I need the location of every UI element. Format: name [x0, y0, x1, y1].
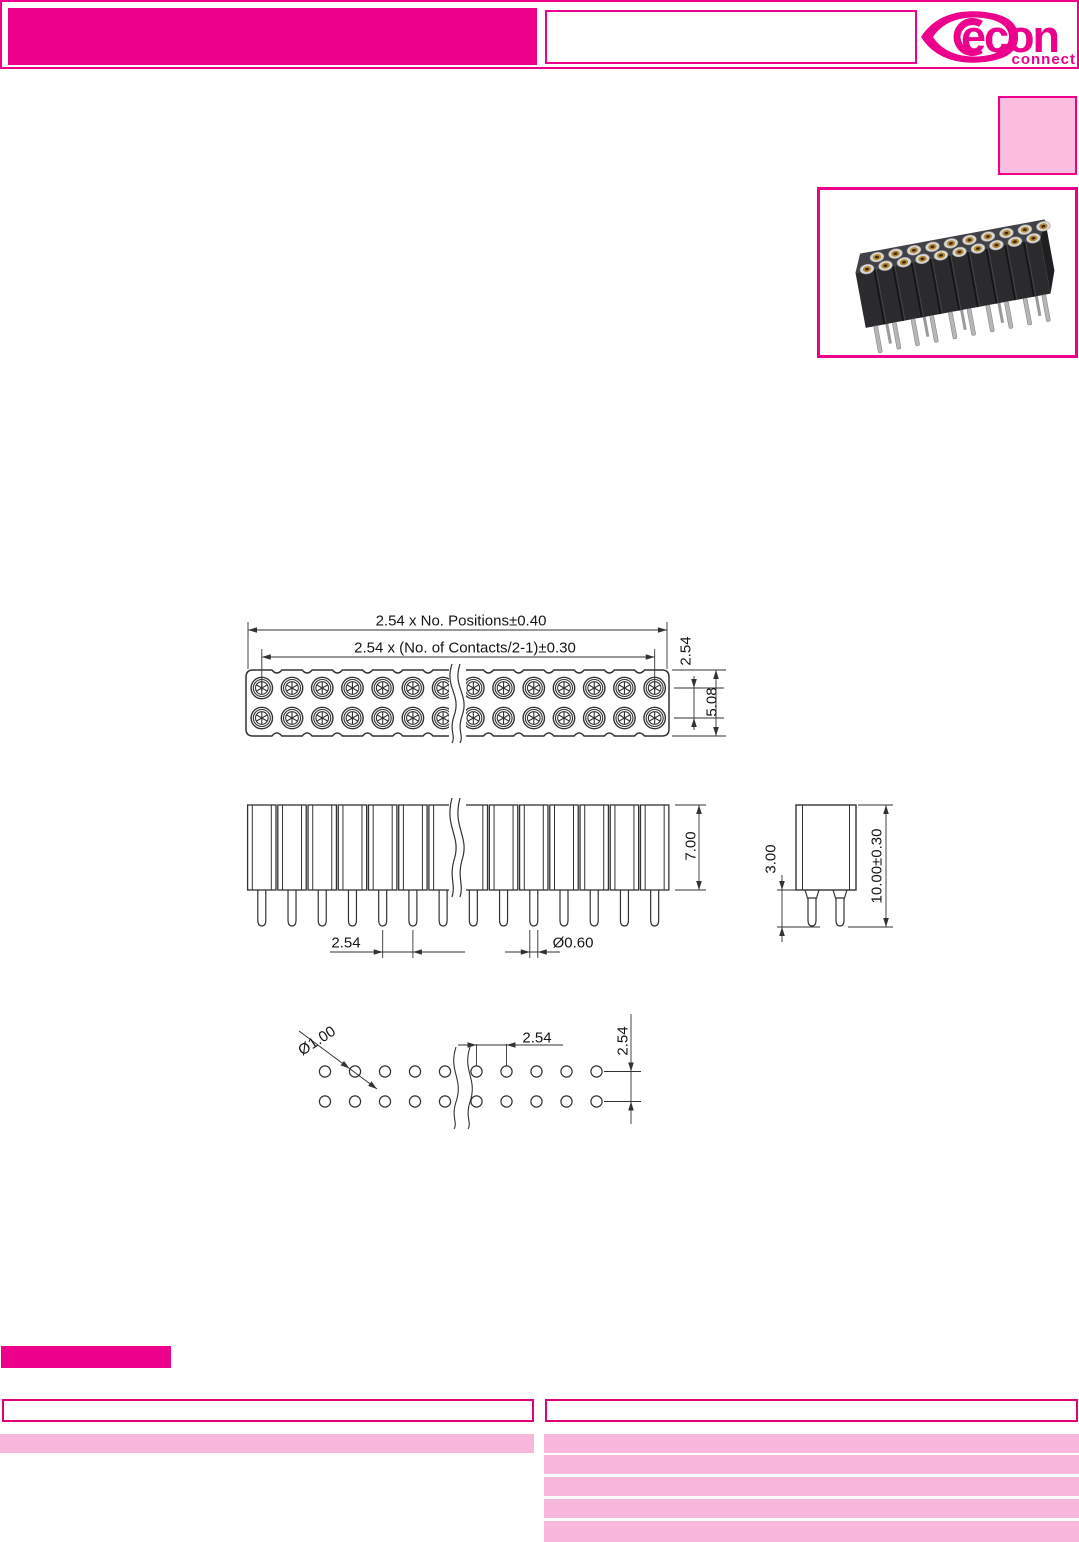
footer-left-row — [0, 1434, 534, 1453]
dim-label-overall-height: 10.00±0.30 — [869, 829, 886, 904]
dim-label-pin-length: 3.00 — [763, 844, 780, 873]
product-photo-frame — [817, 187, 1078, 358]
dim-label-pin-diameter: Ø0.60 — [553, 935, 594, 952]
dim-label-insulator-height: 7.00 — [683, 831, 700, 860]
footer-accent-bar — [1, 1346, 171, 1368]
dim-label-pitch-pcb: 2.54 — [522, 1030, 551, 1047]
econ-eye-logo: econ connect — [919, 7, 1079, 67]
dim-label-body-width: 5.08 — [704, 687, 721, 716]
footer-left-header-box — [2, 1399, 534, 1422]
dim-label-hole-diameter: Ø1.00 — [295, 1023, 339, 1060]
header-accent-block — [8, 8, 537, 65]
footer-right-row — [544, 1434, 1079, 1453]
socket-strip-photo — [820, 190, 1075, 355]
footer-right-row — [544, 1521, 1079, 1542]
dim-label-total-width: 2.54 x No. Positions±0.40 — [376, 613, 547, 630]
dim-label-row-spacing-pcb: 2.54 — [615, 1026, 632, 1055]
dim-label-pitch-front: 2.54 — [331, 935, 360, 952]
logo-tagline: connect — [1011, 51, 1076, 67]
datasheet-page: econ connect — [0, 0, 1079, 1542]
dim-label-contact-span: 2.54 x (No. of Contacts/2-1)±0.30 — [354, 640, 576, 657]
footer-right-row — [544, 1499, 1079, 1518]
brand-logo: econ connect — [919, 7, 1079, 67]
footer-right-header-box — [545, 1399, 1078, 1422]
series-color-tab — [998, 96, 1077, 175]
footer-right-row — [544, 1455, 1079, 1474]
dim-label-row-pitch-top: 2.54 — [678, 636, 695, 665]
footer-right-row — [544, 1477, 1079, 1496]
header-title-box — [545, 10, 917, 64]
header-bar: econ connect — [0, 0, 1079, 69]
